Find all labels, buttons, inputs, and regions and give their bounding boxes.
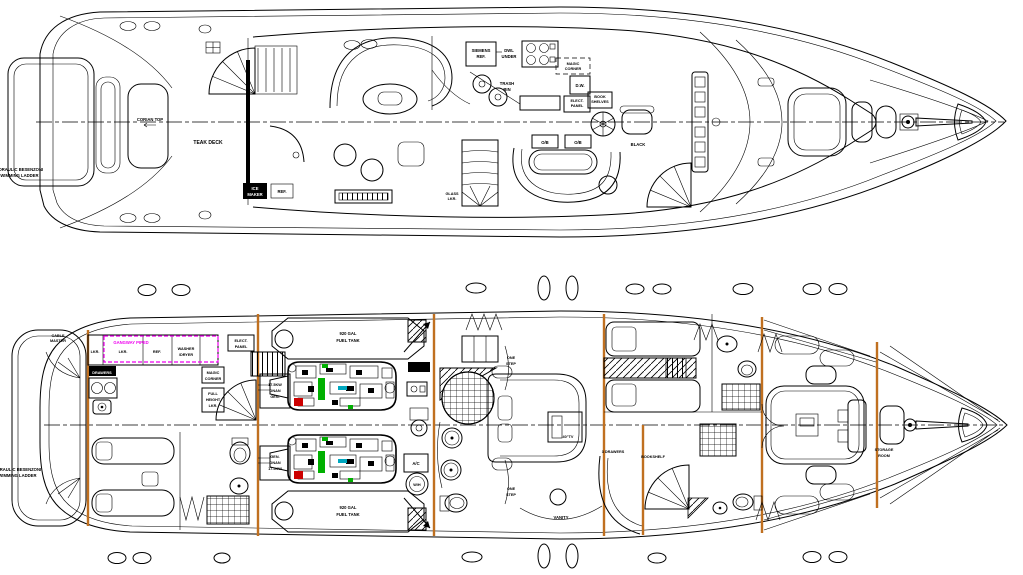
- label-dw: D.W.: [575, 83, 584, 88]
- ga-drawing-sheet: HYDRAULIC BESENZONI SWIMMING LADDER CORI…: [0, 0, 1023, 575]
- master-bed: [488, 374, 586, 462]
- engine-starboard: [258, 435, 396, 483]
- porthole-row-lower: [108, 544, 847, 568]
- label-ac: A/C: [412, 461, 419, 466]
- label-bookshelf: BOOKSHELF: [641, 455, 666, 459]
- svg-text:HEIGHT: HEIGHT: [206, 398, 221, 402]
- label-ref: REF.: [277, 189, 286, 194]
- label-washer-dryer: WASHER: [178, 347, 195, 351]
- label-trash-bin: TRASH: [500, 81, 514, 86]
- crew-stair-fan: [216, 380, 256, 420]
- guest-cabins: [599, 314, 784, 534]
- label-tv: 40"TV: [563, 435, 574, 439]
- lower-deck-labels: HYDRAULIC BESENZONI SWIMMING LADDER CABL…: [0, 331, 894, 520]
- label-dwl-under: DWL: [504, 48, 514, 53]
- vanity-stool: [550, 489, 566, 505]
- label-corian-top: CORIAN TOP: [137, 117, 163, 122]
- svg-text:CORNER: CORNER: [205, 377, 222, 381]
- magic-corner-cabinet: [556, 58, 590, 74]
- svg-text:SHELVES: SHELVES: [591, 100, 609, 104]
- svg-text:UNDER: UNDER: [502, 54, 517, 59]
- label-one-step-aft: ONE: [507, 487, 516, 491]
- crew-head: [180, 438, 250, 524]
- label-crew-ref: REF.: [153, 350, 161, 354]
- salon-chair: [361, 159, 383, 181]
- label-3-drawers: 3 DRAWERS: [602, 450, 625, 454]
- crew-sink-unit: [89, 378, 117, 398]
- label-wh: W/H: [413, 483, 421, 487]
- salon-stair: [462, 140, 498, 206]
- label-crew-magic: MAGIC: [207, 371, 220, 375]
- label-one-step-fwd: ONE: [507, 356, 516, 360]
- salon-chair: [334, 144, 356, 166]
- dinette: [513, 135, 620, 202]
- helm-stair-fan: [647, 163, 691, 207]
- label-gen-fwd: 17.5KW: [268, 383, 282, 387]
- galley: [432, 36, 612, 112]
- engine-room-ladder: [251, 352, 285, 376]
- corian-top-unit: [128, 84, 168, 168]
- vip-nightstand: [806, 366, 836, 384]
- svg-text:17.5KW: 17.5KW: [268, 467, 282, 471]
- svg-text:STEP: STEP: [506, 493, 516, 497]
- label-vanity: VANITY: [553, 515, 568, 520]
- main-deck-labels: HYDRAULIC BESENZONI SWIMMING LADDER CORI…: [0, 48, 645, 201]
- svg-text:MAKER: MAKER: [247, 192, 262, 197]
- label-black: BLACK: [631, 142, 646, 147]
- main-deck-plan: HYDRAULIC BESENZONI SWIMMING LADDER CORI…: [0, 7, 1006, 237]
- label-teak-deck: TEAK DECK: [193, 140, 223, 146]
- label-elect-panel: ELECT.: [570, 99, 583, 103]
- label-gangway-piped: GANGWAY PIPED: [113, 340, 148, 345]
- salon-coffee-table: [363, 84, 417, 114]
- svg-text:FUEL TANK: FUEL TANK: [336, 338, 359, 343]
- guest-shower: [722, 384, 760, 410]
- label-crew-elect: ELECT.: [234, 339, 247, 343]
- svg-text:PANEL: PANEL: [571, 104, 584, 108]
- svg-text:BIN: BIN: [503, 87, 510, 92]
- label-gen-aft: GEN.: [270, 455, 279, 459]
- label-full-height-lkr: FULL: [208, 392, 218, 396]
- svg-text:SWIMMING LADDER: SWIMMING LADDER: [0, 473, 36, 478]
- label-glass-lkr: GLASS: [445, 192, 459, 196]
- label-ob-left: O/B: [541, 140, 548, 145]
- side-table: [398, 142, 424, 166]
- svg-text:ONAN: ONAN: [269, 461, 280, 465]
- crew-shower: [207, 496, 249, 524]
- guest-stair-fan: [645, 465, 689, 509]
- svg-text:GEN.: GEN.: [270, 395, 279, 399]
- svg-text:LKR.: LKR.: [448, 197, 457, 201]
- svg-text:FUEL TANK: FUEL TANK: [336, 512, 359, 517]
- ga-drawing: HYDRAULIC BESENZONI SWIMMING LADDER CORI…: [0, 0, 1023, 575]
- label-fuel-fwd: 920 GAL: [340, 331, 357, 336]
- svg-text:/DRYER: /DRYER: [179, 353, 193, 357]
- aft-stair-fan: [209, 46, 297, 94]
- guest-bed: [606, 380, 700, 412]
- svg-text:STEP: STEP: [506, 362, 516, 366]
- label-swim-ladder: HYDRAULIC BESENZONI: [0, 167, 43, 172]
- svg-text:REF.: REF.: [476, 54, 485, 59]
- svg-text:PANEL: PANEL: [235, 345, 248, 349]
- dinette-table: [529, 150, 597, 174]
- label-ob-right: O/B: [574, 140, 581, 145]
- vip-nightstand: [806, 466, 836, 484]
- svg-text:MASTER: MASTER: [50, 339, 66, 343]
- salon-aft-bulkhead: [246, 60, 250, 190]
- guest-shower-aft: [700, 424, 736, 456]
- crew-quarters: [88, 335, 256, 530]
- master-shower: [442, 372, 494, 424]
- label-book-shelves: BOOK: [594, 95, 606, 99]
- master-closet: [462, 336, 498, 362]
- svg-text:ICE: ICE: [252, 186, 259, 191]
- label-lkr-b: LKR.: [119, 350, 128, 354]
- dinette-chair: [599, 176, 617, 194]
- lower-deck-plan: HYDRAULIC BESENZONI SWIMMING LADDER CABL…: [0, 311, 1007, 539]
- svg-text:SWIMMING LADDER: SWIMMING LADDER: [0, 173, 38, 178]
- porthole-row-upper: [138, 276, 847, 300]
- svg-text:ROOM: ROOM: [878, 454, 890, 458]
- label-cable-master: CABLE: [51, 334, 65, 338]
- salon-door-arc: [270, 126, 304, 162]
- master-stateroom: [437, 314, 602, 520]
- label-storage-room: STORAGE: [875, 448, 894, 452]
- label-magic-corner: MAGIC: [567, 62, 580, 66]
- svg-text:CORNER: CORNER: [565, 67, 582, 71]
- label-fuel-aft: 920 GAL: [340, 505, 357, 510]
- label-drawers: DRAWERS: [92, 371, 112, 375]
- svg-text:LKR.: LKR.: [209, 404, 218, 408]
- guest-toilet: [738, 361, 756, 377]
- svg-text:ONAN: ONAN: [269, 389, 280, 393]
- label-siemens-ref: SIEMENS: [472, 48, 491, 53]
- label-swim-ladder-lower: HYDRAULIC BESENZONI: [0, 467, 41, 472]
- galley-counter: [520, 96, 560, 110]
- label-lkr-a: LKR.: [91, 350, 100, 354]
